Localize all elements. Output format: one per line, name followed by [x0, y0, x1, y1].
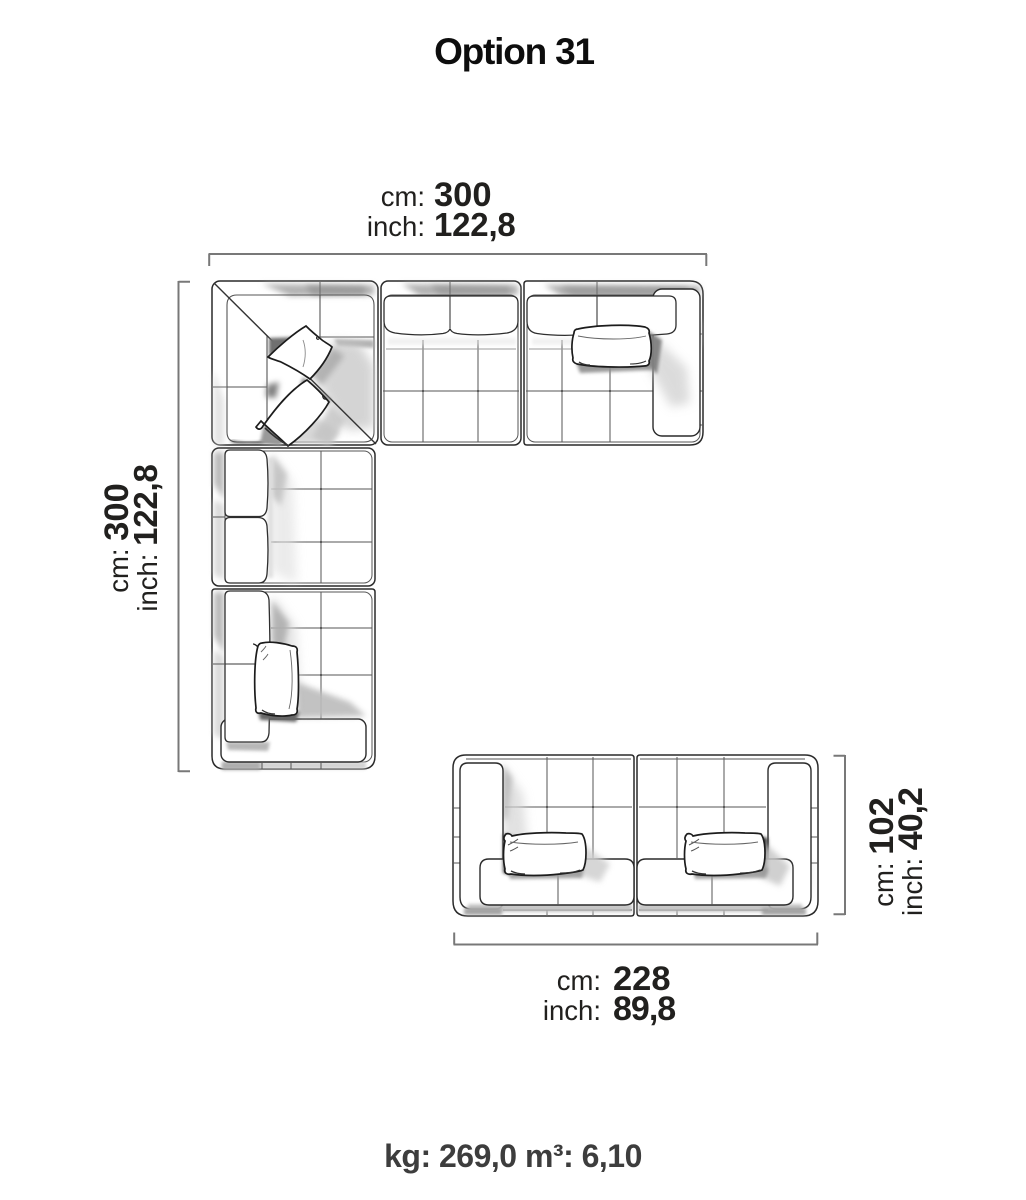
svg-text:cm:: cm:: [381, 181, 425, 212]
svg-text:inch: 40,2: inch: 40,2: [892, 788, 930, 916]
svg-text:122,8: 122,8: [434, 206, 516, 243]
svg-text:inch:: inch:: [367, 211, 425, 242]
svg-text:kg: 269,0 m³: 6,10: kg: 269,0 m³: 6,10: [384, 1138, 642, 1174]
svg-text:89,8: 89,8: [613, 990, 675, 1028]
svg-text:inch:: inch:: [543, 995, 601, 1026]
svg-text:cm:: cm:: [557, 965, 601, 996]
svg-text:inch: 122,8: inch: 122,8: [127, 464, 164, 611]
svg-text:Option 31: Option 31: [434, 31, 594, 72]
